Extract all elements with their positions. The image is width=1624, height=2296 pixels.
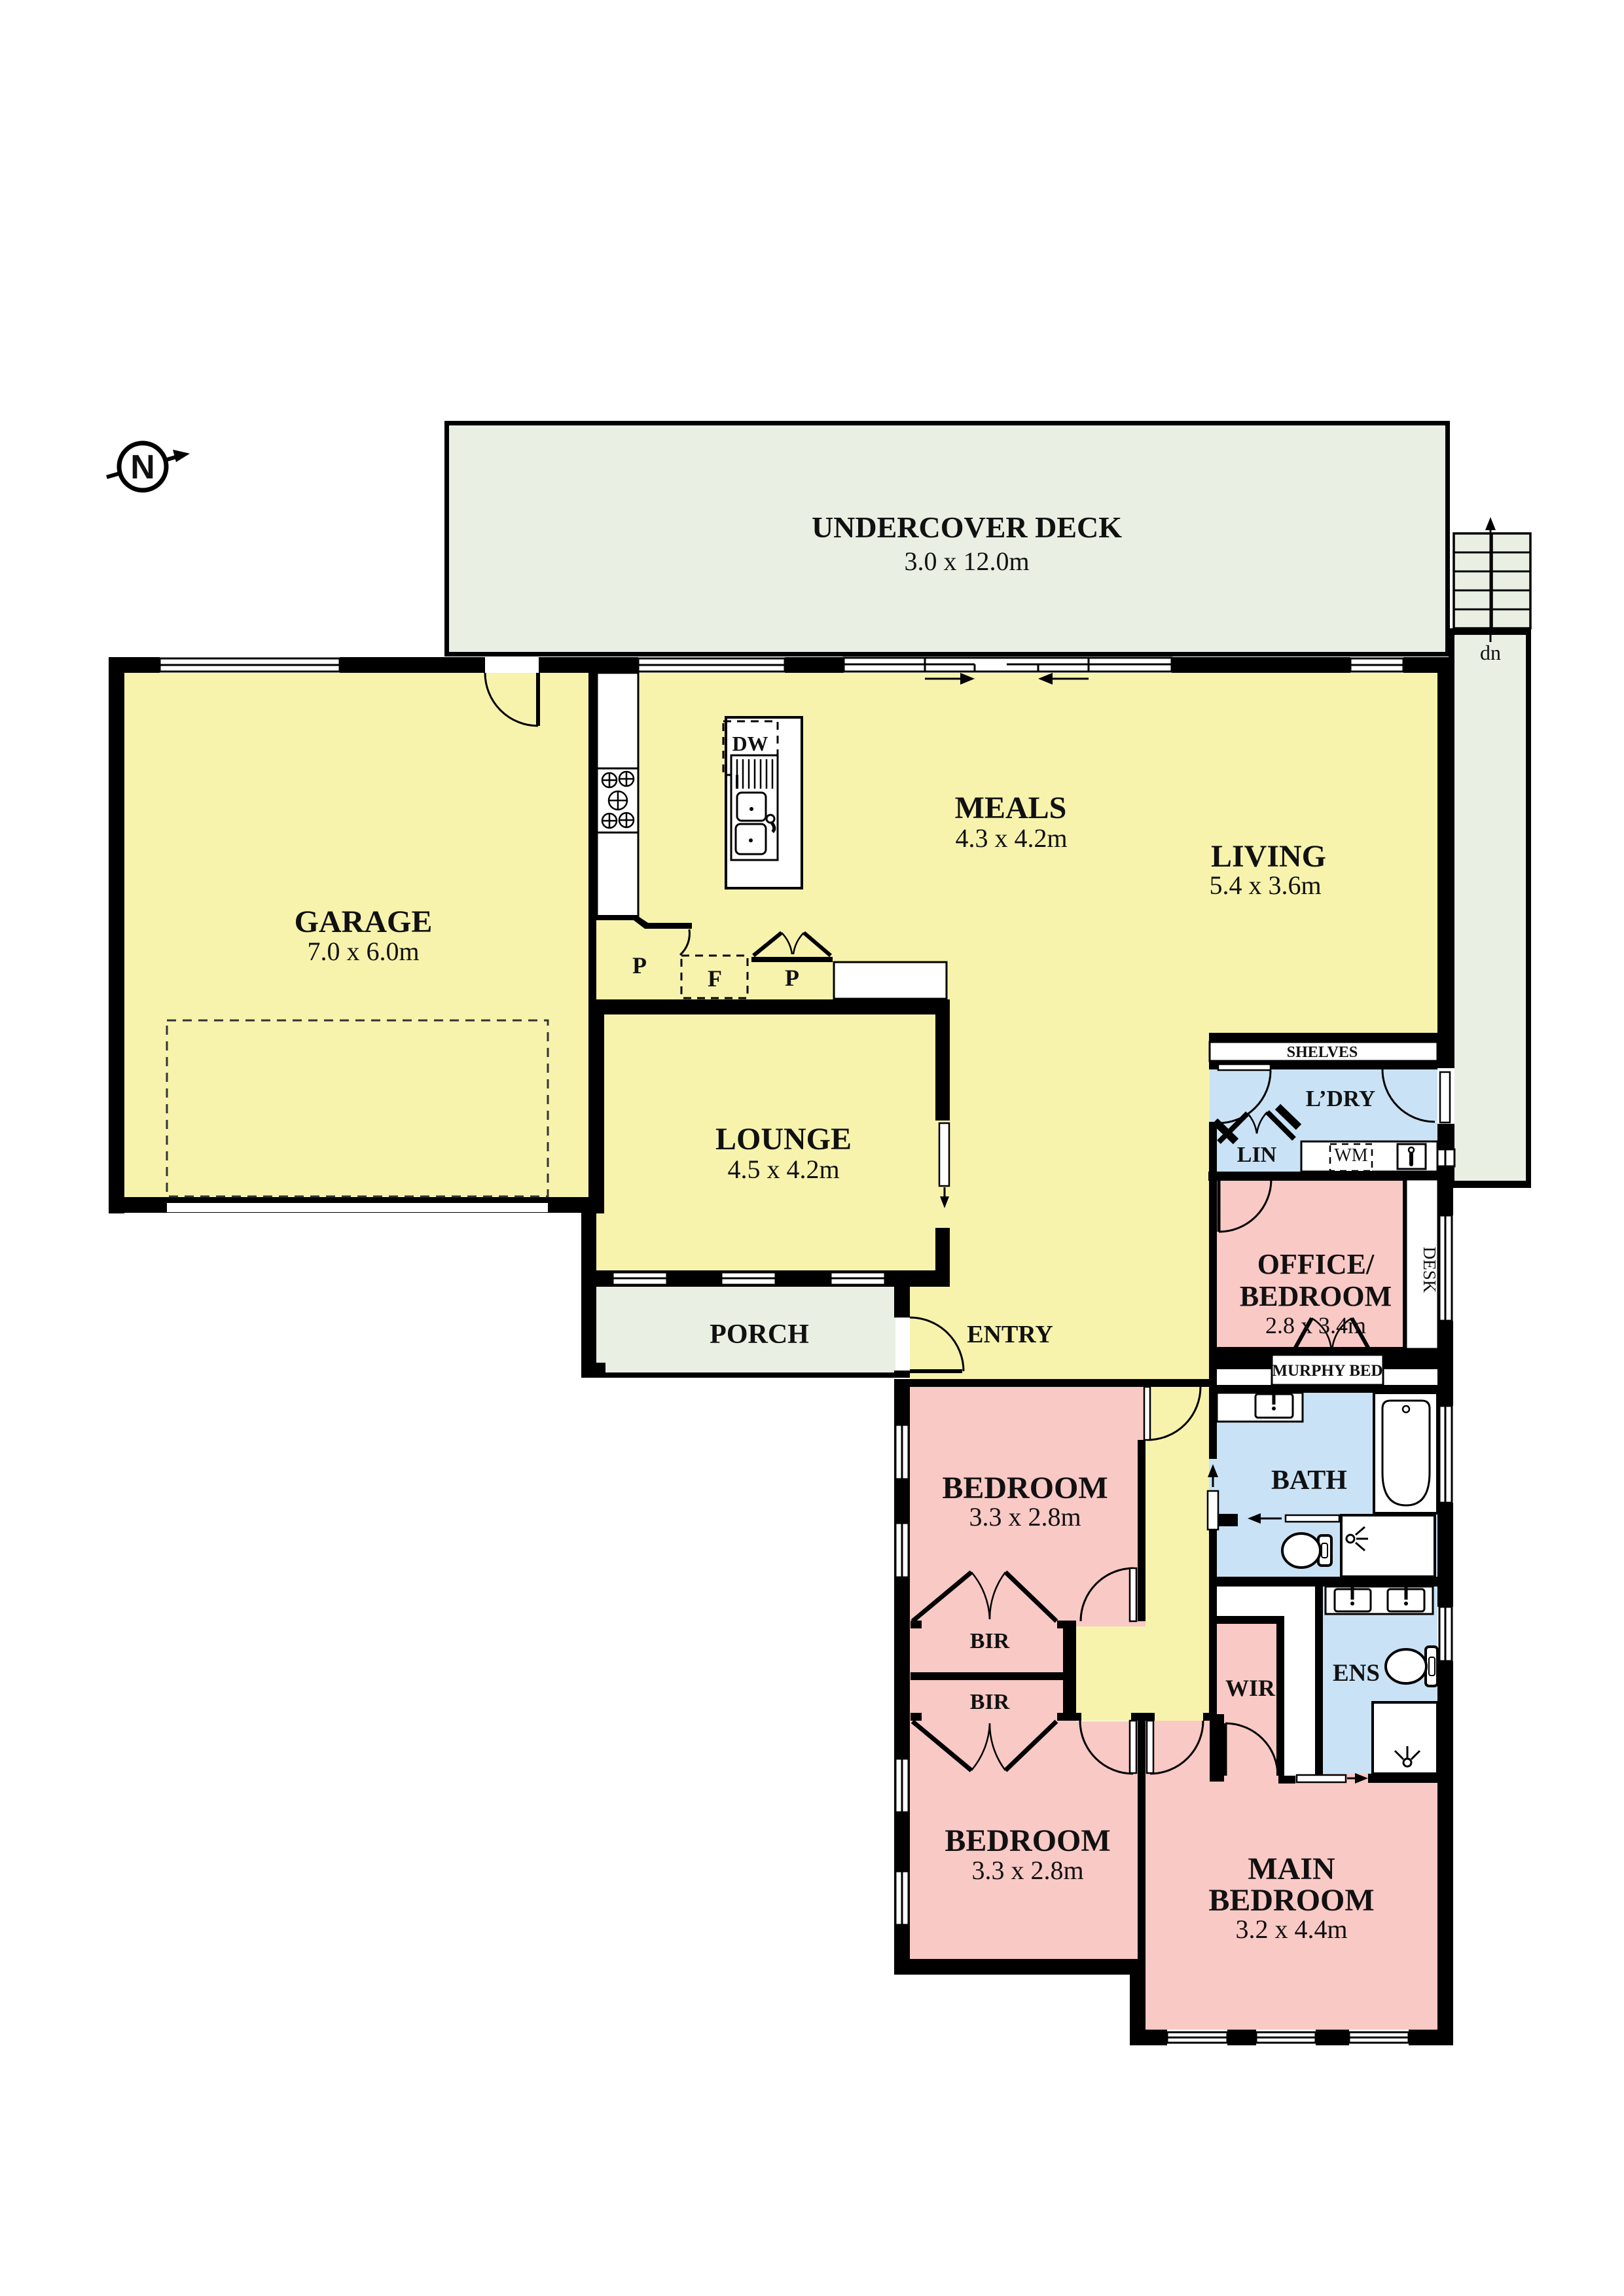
svg-text:N: N [130, 448, 155, 486]
svg-text:BEDROOM: BEDROOM [942, 1471, 1108, 1505]
svg-text:BIR: BIR [970, 1629, 1010, 1653]
svg-text:4.3 x 4.2m: 4.3 x 4.2m [955, 823, 1067, 853]
svg-text:UNDERCOVER DECK: UNDERCOVER DECK [812, 511, 1122, 544]
svg-text:BEDROOM: BEDROOM [1240, 1280, 1392, 1312]
svg-text:DW: DW [732, 732, 768, 755]
svg-text:GARAGE: GARAGE [295, 905, 433, 939]
svg-text:3.0 x 12.0m: 3.0 x 12.0m [904, 547, 1029, 576]
svg-text:MEALS: MEALS [955, 791, 1067, 825]
svg-text:2.8 x 3.4m: 2.8 x 3.4m [1265, 1312, 1366, 1338]
svg-text:BEDROOM: BEDROOM [945, 1823, 1110, 1858]
svg-text:5.4 x 3.6m: 5.4 x 3.6m [1209, 870, 1321, 900]
svg-text:WIR: WIR [1225, 1675, 1276, 1701]
svg-text:SHELVES: SHELVES [1287, 1044, 1358, 1061]
svg-text:ENTRY: ENTRY [967, 1321, 1053, 1348]
svg-text:3.3 x 2.8m: 3.3 x 2.8m [969, 1502, 1081, 1532]
svg-text:ENS: ENS [1333, 1660, 1380, 1687]
svg-text:BATH: BATH [1271, 1465, 1347, 1496]
svg-text:P: P [632, 952, 647, 978]
svg-text:3.3 x 2.8m: 3.3 x 2.8m [971, 1856, 1083, 1885]
svg-text:P: P [785, 965, 799, 991]
svg-text:MURPHY BED: MURPHY BED [1272, 1362, 1382, 1380]
svg-text:L’DRY: L’DRY [1306, 1086, 1375, 1111]
svg-text:4.5 x 4.2m: 4.5 x 4.2m [727, 1155, 839, 1184]
svg-text:LIN: LIN [1237, 1143, 1277, 1167]
svg-text:BEDROOM: BEDROOM [1208, 1883, 1374, 1918]
svg-text:MAIN: MAIN [1248, 1852, 1335, 1886]
svg-text:WM: WM [1334, 1145, 1367, 1166]
svg-text:OFFICE/: OFFICE/ [1257, 1248, 1375, 1280]
svg-text:7.0 x 6.0m: 7.0 x 6.0m [307, 937, 419, 966]
svg-text:PORCH: PORCH [710, 1319, 809, 1350]
svg-text:LOUNGE: LOUNGE [715, 1122, 852, 1157]
svg-text:DESK: DESK [1420, 1247, 1439, 1293]
svg-text:3.2 x 4.4m: 3.2 x 4.4m [1235, 1914, 1347, 1944]
svg-text:F: F [708, 965, 722, 992]
svg-text:LIVING: LIVING [1211, 839, 1326, 874]
svg-text:dn: dn [1480, 641, 1501, 664]
svg-text:BIR: BIR [970, 1690, 1010, 1714]
